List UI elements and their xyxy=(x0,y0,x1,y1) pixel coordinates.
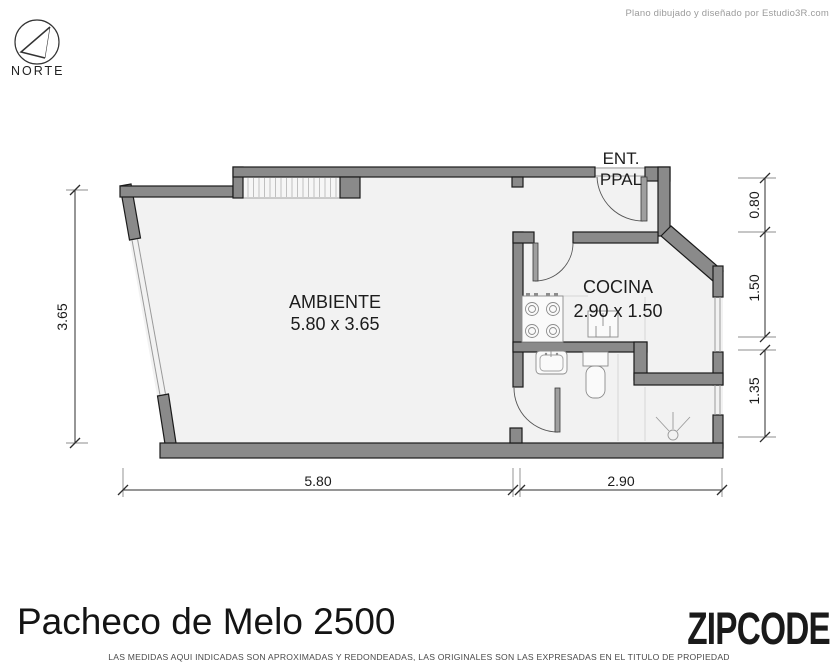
dim-right-080: 0.80 xyxy=(746,191,762,218)
floorplan-page: Plano dibujado y diseñado por Estudio3R.… xyxy=(0,0,838,670)
room-cocina-name: COCINA xyxy=(573,275,662,299)
room-ambiente-name: AMBIENTE xyxy=(289,291,381,313)
wall-tooth-bottom xyxy=(510,428,522,443)
bathroom-door-leaf xyxy=(555,388,560,432)
window-hatch-strip xyxy=(243,177,340,198)
dim-right-150: 1.50 xyxy=(746,274,762,301)
wall-kitchen-bottom xyxy=(513,342,647,352)
wall-pilaster xyxy=(340,177,360,198)
dim-right-135: 1.35 xyxy=(746,377,762,404)
zipcode-logo: ZIPCODE xyxy=(687,603,830,655)
wall-top-band xyxy=(233,167,595,177)
entrance-label-line2: PPAL xyxy=(600,169,642,190)
compass-label: NORTE xyxy=(11,64,65,78)
wall-entry-corner-right xyxy=(658,167,670,236)
bathroom-sink-icon xyxy=(536,351,567,374)
entrance-label: ENT. PPAL xyxy=(600,148,642,190)
dim-bottom-580: 5.80 xyxy=(304,473,331,489)
disclaimer-text: LAS MEDIDAS AQUI INDICADAS SON APROXIMAD… xyxy=(108,652,729,662)
wall-z-horizontal xyxy=(634,373,723,385)
kitchen-door-leaf xyxy=(533,243,538,281)
address-title: Pacheco de Melo 2500 xyxy=(17,601,396,643)
wall-top-left-band xyxy=(120,186,233,197)
entrance-label-line1: ENT. xyxy=(600,148,642,169)
room-ambiente-dims: 5.80 x 3.65 xyxy=(289,313,381,335)
room-cocina-dims: 2.90 x 1.50 xyxy=(573,299,662,323)
wall-bottom xyxy=(160,443,723,458)
stove-icon xyxy=(522,293,563,342)
room-ambiente: AMBIENTE 5.80 x 3.65 xyxy=(289,291,381,335)
floorplan-svg xyxy=(0,0,838,670)
dim-left-365: 3.65 xyxy=(54,303,70,330)
wall-kitchen-divider xyxy=(573,232,658,243)
north-compass-icon xyxy=(15,20,59,64)
dim-bottom-290: 2.90 xyxy=(607,473,634,489)
wall-right-1 xyxy=(713,266,723,297)
plan-credit: Plano dibujado y diseñado por Estudio3R.… xyxy=(626,8,829,19)
toilet-icon xyxy=(583,352,608,398)
wall-kitchen-jamb-left xyxy=(513,232,534,243)
wall-tooth-top xyxy=(512,177,523,187)
room-cocina: COCINA 2.90 x 1.50 xyxy=(573,275,662,323)
wall-interior-vertical xyxy=(513,232,523,387)
